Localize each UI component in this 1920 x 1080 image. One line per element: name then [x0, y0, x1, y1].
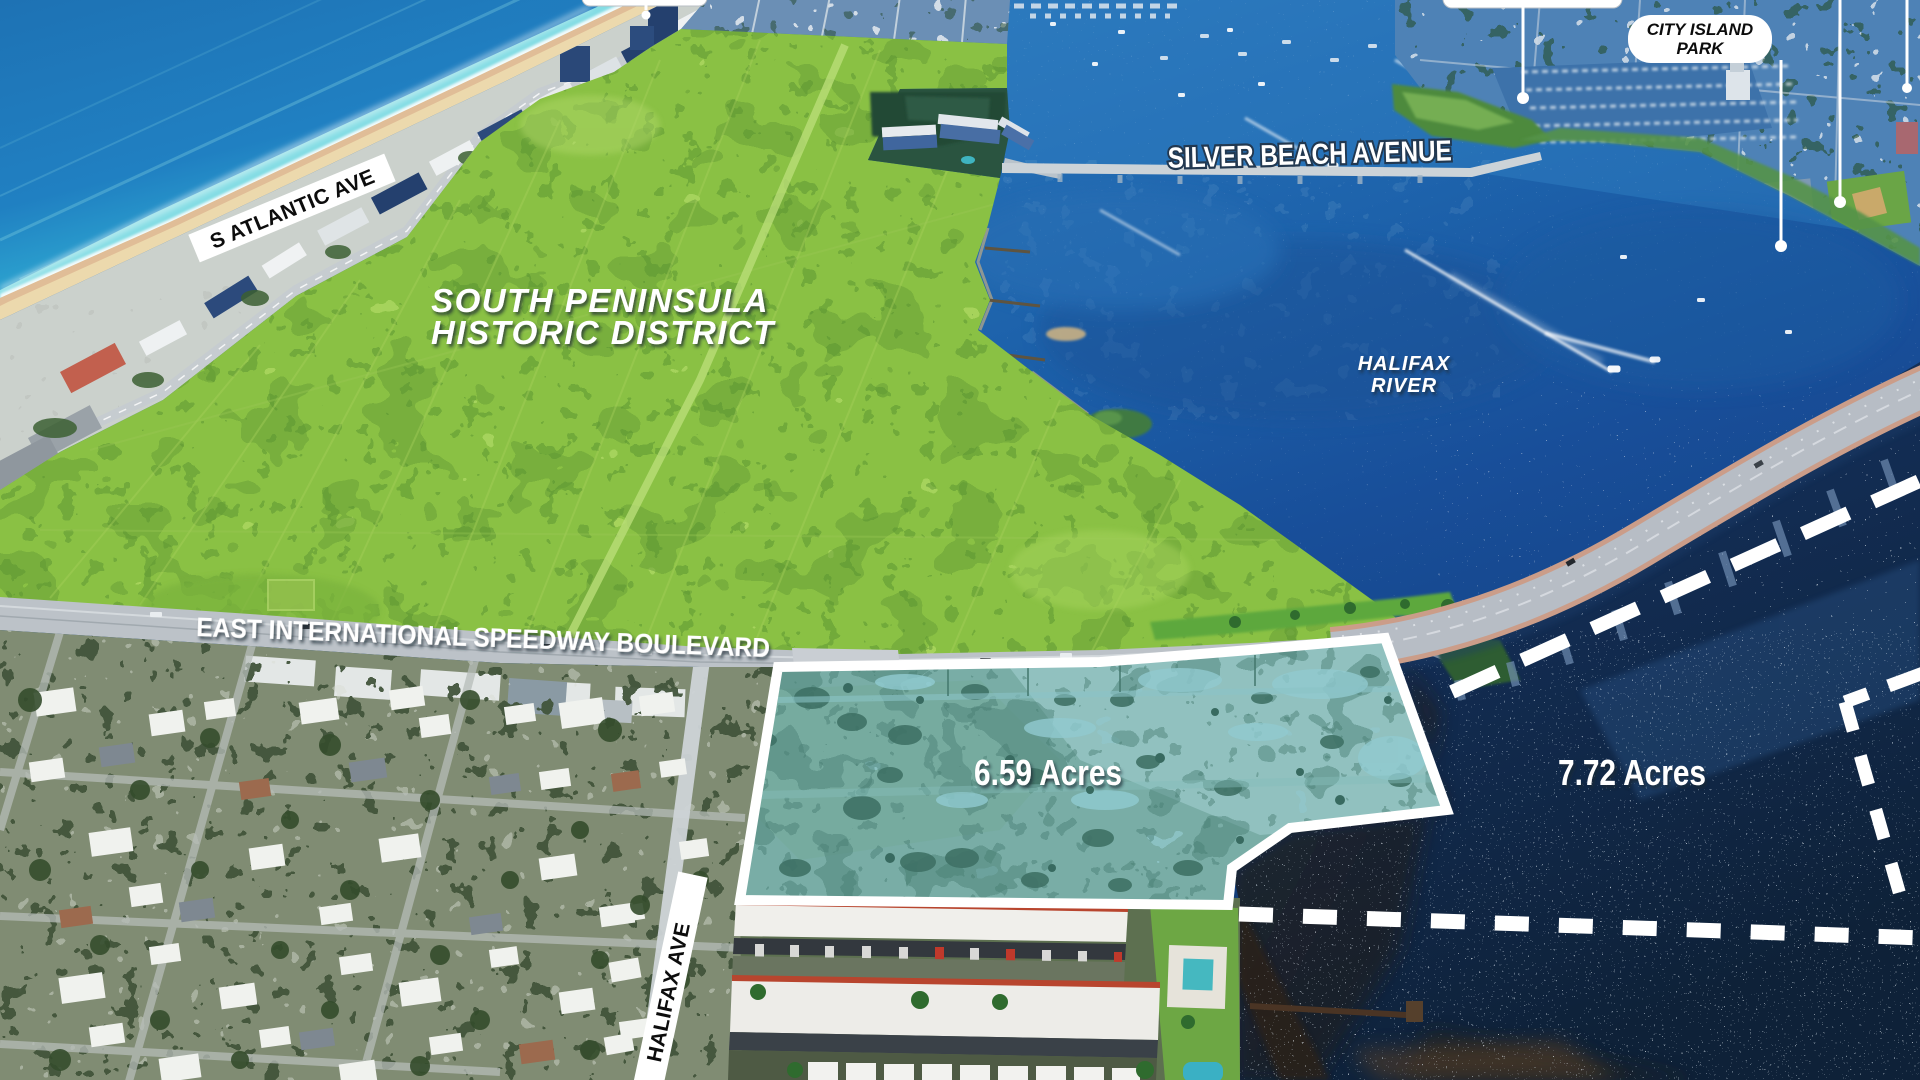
svg-text:HALIFAX: HALIFAX: [1358, 353, 1451, 375]
svg-text:HISTORIC DISTRICT: HISTORIC DISTRICT: [431, 314, 776, 351]
svg-text:6.59 Acres: 6.59 Acres: [974, 752, 1122, 793]
svg-text:CITY ISLAND: CITY ISLAND: [1647, 20, 1753, 39]
svg-text:RIVER: RIVER: [1371, 375, 1437, 397]
svg-text:7.72 Acres: 7.72 Acres: [1558, 752, 1706, 793]
svg-text:PARK: PARK: [1677, 39, 1726, 58]
